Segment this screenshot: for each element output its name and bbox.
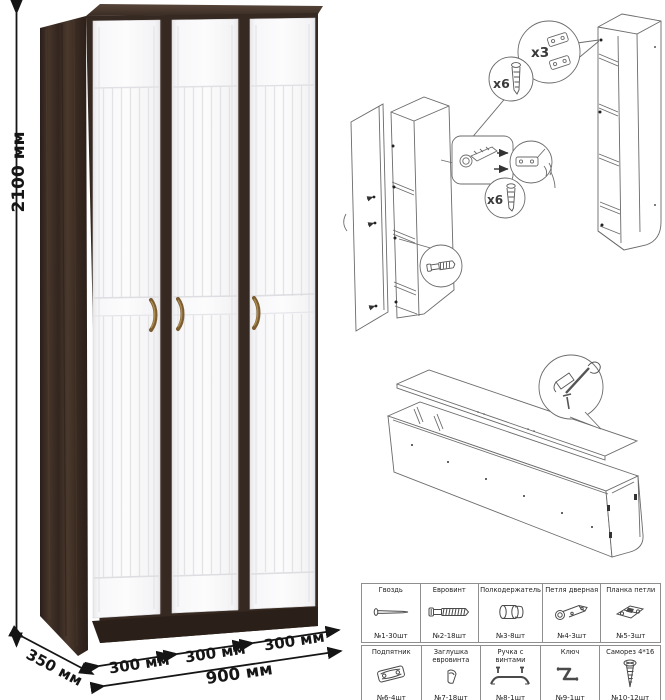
hardware-item-foot-glide: Подпятник №6-4шт xyxy=(362,646,422,700)
assembly-door-panel xyxy=(344,104,388,331)
hardware-table: Гвоздь №1-30шт Евровинт №2-18ш xyxy=(361,583,661,700)
hardware-item-name: Евровинт xyxy=(433,587,466,595)
hardware-item-count: №8-1шт xyxy=(496,694,525,700)
shelf-pin-icon xyxy=(492,601,528,627)
height-dimension-label: 2100 мм xyxy=(9,131,29,212)
hardware-item-count: №10-12шт xyxy=(611,694,649,700)
hardware-item-door-hinge: Петля дверная №4-3шт xyxy=(543,584,602,642)
handle-icon xyxy=(487,665,533,693)
hardware-item-hex-key: Ключ №9-1шт xyxy=(541,646,601,700)
hardware-item-screw-cap: Заглушка евровинта №7-18шт xyxy=(422,646,482,700)
door1-width-label: 300 мм xyxy=(108,651,171,678)
door3-width-label: 300 мм xyxy=(263,628,326,655)
wardrobe-door-1 xyxy=(93,20,160,618)
hardware-item-count: №5-3шт xyxy=(616,632,645,640)
hardware-item-count: №3-8шт xyxy=(496,632,525,640)
nail-icon xyxy=(371,602,411,626)
hardware-item-nail: Гвоздь №1-30шт xyxy=(362,584,421,642)
wardrobe-door-3 xyxy=(250,18,315,609)
hardware-item-name: Ключ xyxy=(561,649,580,657)
euroscrew-callout xyxy=(420,245,462,287)
hardware-item-count: №6-4шт xyxy=(377,694,406,700)
hardware-item-count: №2-18шт xyxy=(432,632,466,640)
product-assembly-sheet: 2100 мм 350 мм 300 мм 300 мм 300 мм 900 … xyxy=(0,0,665,700)
hinge-mount-detail xyxy=(510,141,555,188)
screws-count-label-b: x6 xyxy=(487,193,503,207)
wardrobe-door-2 xyxy=(172,19,238,613)
hardware-item-hinge-plate: Планка петли №5-3шт xyxy=(601,584,660,642)
screw-cap-icon xyxy=(436,667,466,691)
assembly-diagram-back-panel xyxy=(388,355,643,557)
assembly-diagram-hinges: x3 x6 xyxy=(344,14,661,331)
hinge-plate-icon xyxy=(612,601,650,627)
hinge-plates-count-label: x3 xyxy=(531,45,549,61)
screw-callout-a: x6 xyxy=(489,57,533,101)
hardware-item-name: Подпятник xyxy=(372,649,411,657)
hardware-item-name: Ручка с винтами xyxy=(482,649,539,664)
assembly-right-cabinet xyxy=(598,14,661,250)
hardware-item-name: Саморез 4*16 xyxy=(606,649,654,657)
screws-count-label-a: x6 xyxy=(493,76,510,91)
hardware-item-name: Петля дверная xyxy=(545,587,598,595)
screw-callout-b: x6 xyxy=(485,178,525,218)
door-hinge-icon xyxy=(552,601,592,627)
hardware-item-count: №1-30шт xyxy=(374,632,408,640)
euroscrew-icon xyxy=(427,602,471,626)
hardware-item-name: Заглушка евровинта xyxy=(423,649,480,664)
hardware-item-euroscrew: Евровинт №2-18шт xyxy=(421,584,480,642)
hardware-item-self-tapping-screw: Саморез 4*16 №10-12шт xyxy=(600,646,660,700)
hardware-table-row-2: Подпятник №6-4шт Заглушка евровинта xyxy=(361,645,661,700)
hardware-item-name: Гвоздь xyxy=(379,587,403,595)
hardware-item-handle: Ручка с винтами №8-1шт xyxy=(481,646,541,700)
hinge-install-detail xyxy=(452,136,513,184)
door2-width-label: 300 мм xyxy=(184,640,247,667)
hex-key-icon xyxy=(552,662,588,690)
hardware-item-count: №9-1шт xyxy=(555,694,584,700)
hardware-table-row-1: Гвоздь №1-30шт Евровинт №2-18ш xyxy=(361,583,661,643)
self-tapping-screw-icon xyxy=(618,659,642,693)
hardware-item-count: №7-18шт xyxy=(434,694,468,700)
hardware-item-name: Планка петли xyxy=(606,587,655,595)
hardware-item-shelf-pin: Полкодержатель №3-8шт xyxy=(479,584,543,642)
hardware-item-name: Полкодержатель xyxy=(480,587,541,595)
foot-glide-icon xyxy=(372,662,410,690)
hardware-item-count: №4-3шт xyxy=(557,632,586,640)
wardrobe-render xyxy=(40,4,323,656)
total-width-label: 900 мм xyxy=(205,659,274,688)
